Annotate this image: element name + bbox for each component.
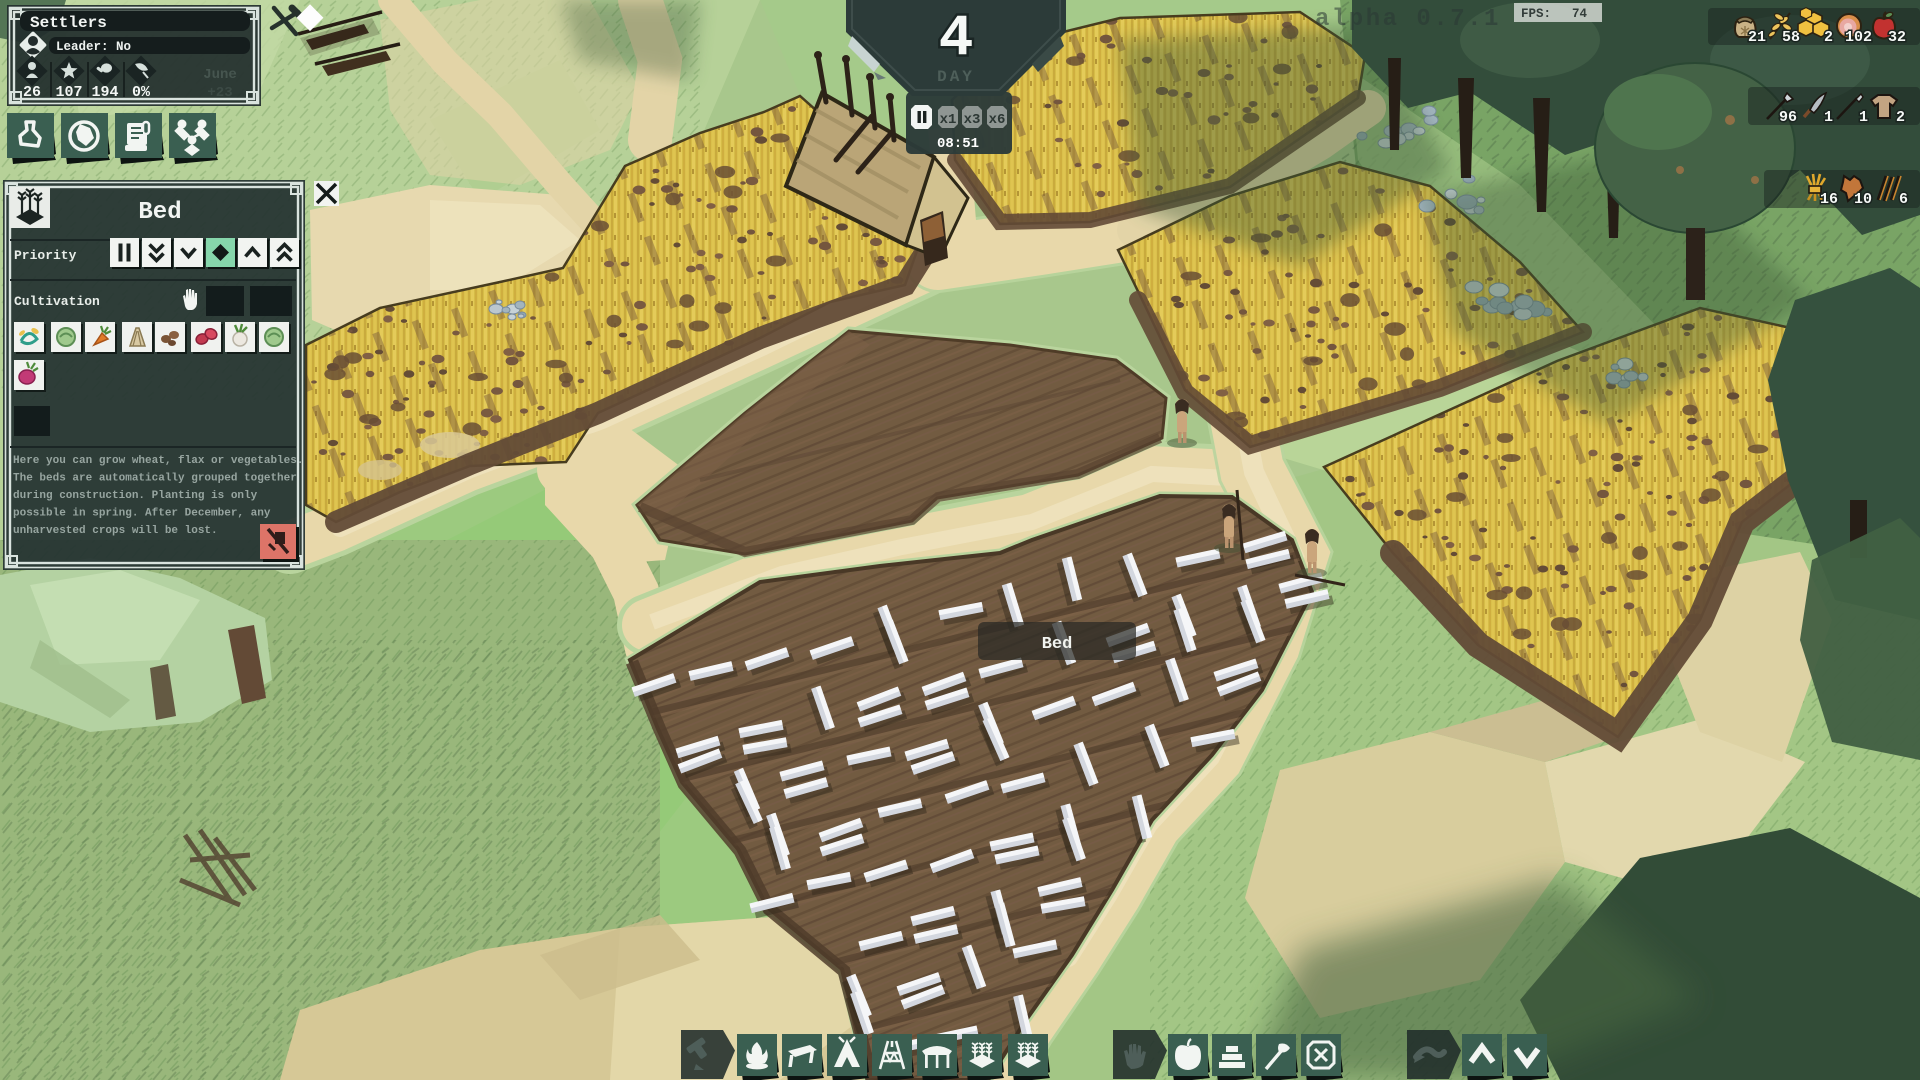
svg-text:Priority: Priority	[14, 248, 77, 263]
svg-text:21: 21	[1748, 29, 1766, 46]
svg-text:possible in spring. After Dece: possible in spring. After December, any	[13, 508, 271, 520]
svg-text:Bed: Bed	[138, 199, 181, 226]
svg-text:1: 1	[1824, 109, 1833, 126]
svg-text:194: 194	[91, 84, 118, 101]
svg-text:0%: 0%	[132, 84, 151, 101]
svg-text:16: 16	[1820, 191, 1838, 208]
svg-text:6: 6	[1899, 191, 1908, 208]
svg-text:10: 10	[1854, 191, 1872, 208]
svg-text:FPS:: FPS:	[1521, 7, 1551, 21]
svg-text:1: 1	[1859, 109, 1868, 126]
svg-text:x3: x3	[964, 112, 981, 128]
svg-text:107: 107	[55, 84, 82, 101]
svg-text:+23: +23	[207, 85, 232, 101]
svg-text:during construction. Planting: during construction. Planting is only	[13, 490, 258, 502]
svg-text:June: June	[203, 67, 237, 83]
svg-text:Cultivation: Cultivation	[14, 294, 100, 309]
svg-text:4: 4	[939, 7, 974, 72]
svg-text:32: 32	[1888, 29, 1906, 46]
svg-text:08:51: 08:51	[937, 136, 979, 152]
svg-text:102: 102	[1845, 29, 1872, 46]
svg-text:26: 26	[23, 84, 41, 101]
svg-text:Bed: Bed	[1042, 635, 1073, 654]
svg-text:DAY: DAY	[937, 68, 975, 86]
svg-text:x6: x6	[989, 112, 1006, 128]
svg-text:Here you can grow wheat, flax: Here you can grow wheat, flax or vegetab…	[13, 455, 303, 467]
svg-text:alpha 0.7.1: alpha 0.7.1	[1315, 6, 1501, 33]
svg-text:unharvested crops will be lost: unharvested crops will be lost.	[13, 525, 218, 537]
svg-text:Leader: No: Leader: No	[56, 40, 131, 54]
svg-text:96: 96	[1779, 109, 1797, 126]
svg-text:2: 2	[1896, 109, 1905, 126]
svg-text:74: 74	[1572, 7, 1588, 21]
svg-text:The beds are automatically gro: The beds are automatically grouped toget…	[13, 473, 297, 485]
svg-text:Settlers: Settlers	[30, 14, 107, 32]
svg-text:x1: x1	[940, 112, 957, 128]
svg-text:2: 2	[1824, 29, 1833, 46]
